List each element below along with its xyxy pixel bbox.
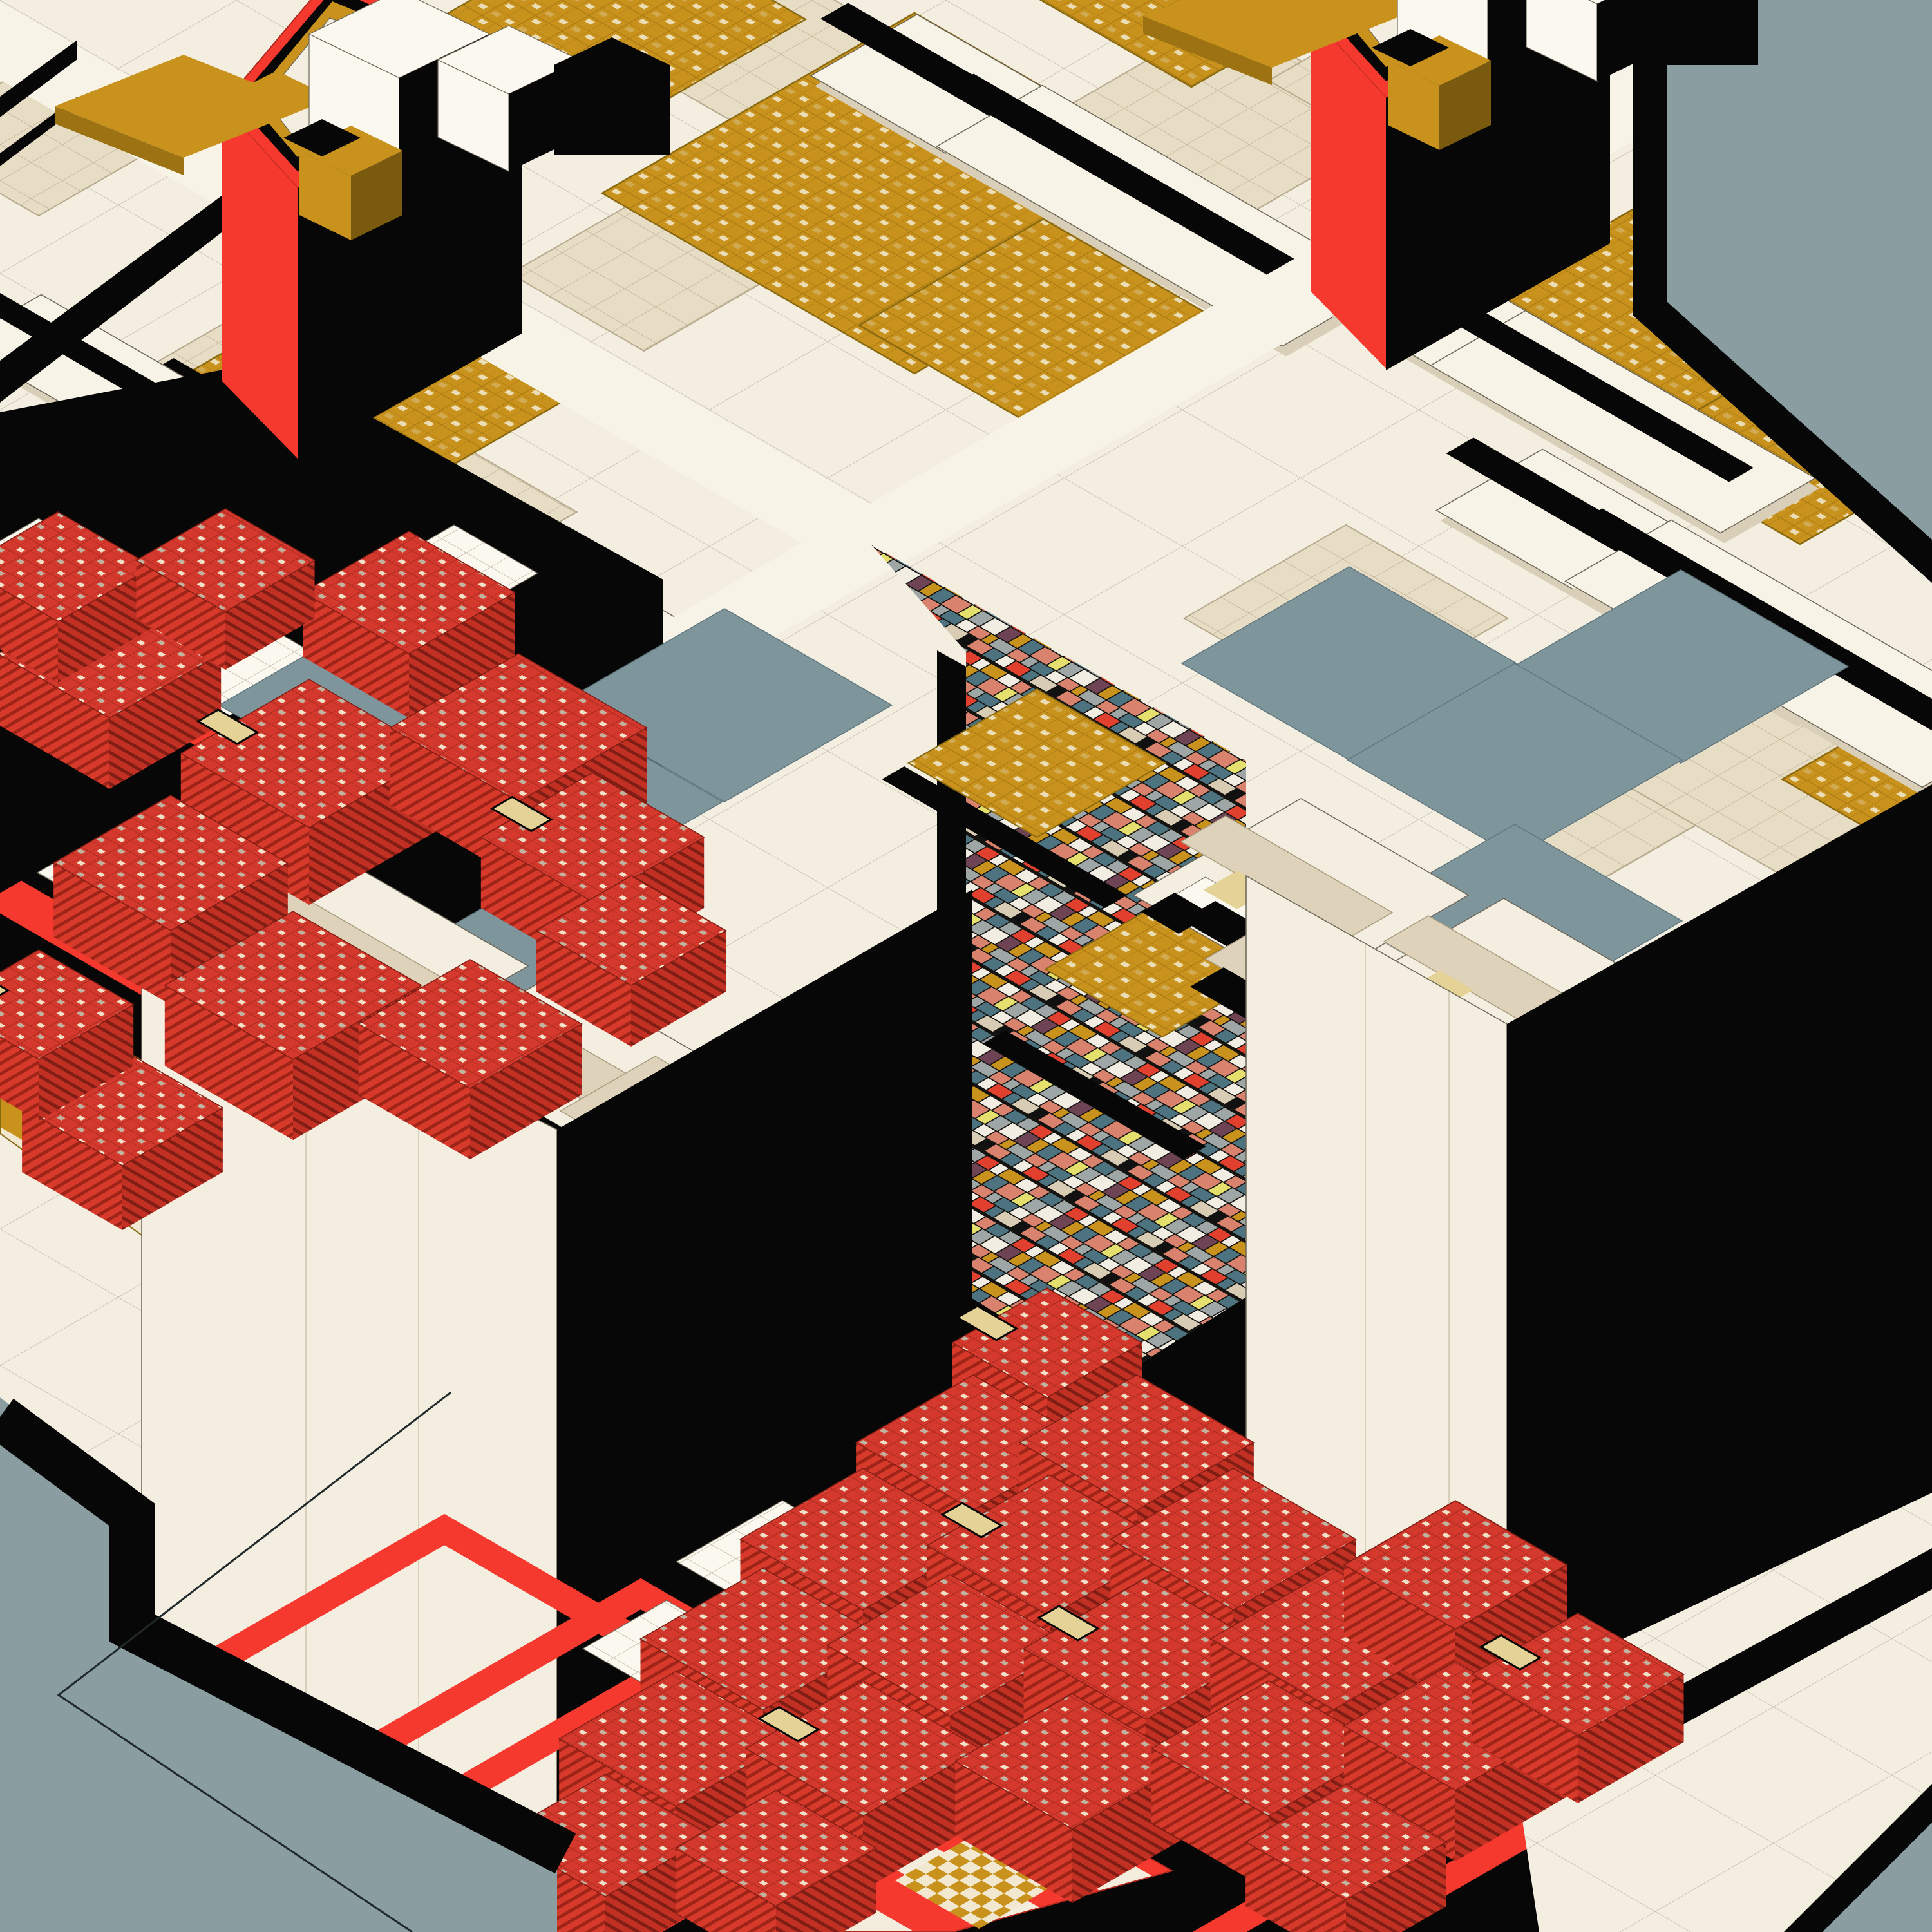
isometric-city-plate: Isometric generative city plate: [0, 0, 1932, 1932]
artwork-canvas: Isometric generative city plate: [0, 0, 1932, 1932]
